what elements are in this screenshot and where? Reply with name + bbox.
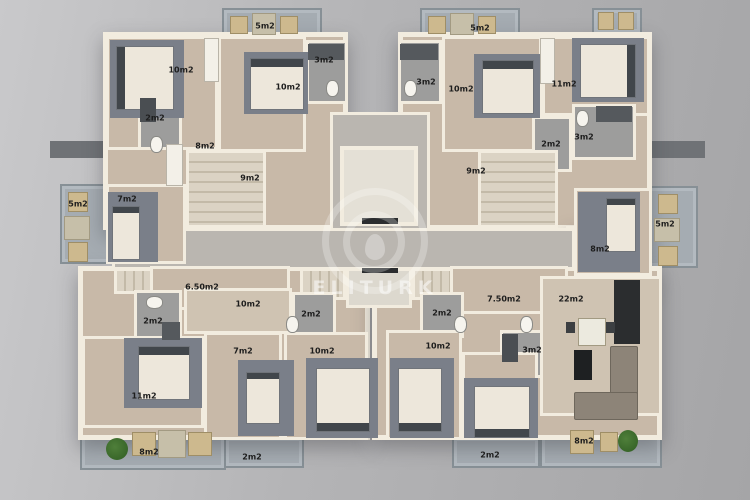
vanity: [140, 98, 156, 122]
bed-headboard: [247, 373, 279, 379]
balcony-chair: [658, 194, 678, 214]
balcony-chair: [658, 246, 678, 266]
wardrobe: [540, 38, 555, 84]
bed-headboard: [483, 61, 533, 69]
shower: [400, 44, 438, 60]
shower: [596, 106, 632, 122]
shower: [162, 322, 180, 340]
bed-headboard: [139, 347, 189, 355]
sofa: [574, 392, 638, 420]
toilet: [576, 110, 589, 127]
balcony-chair: [618, 12, 634, 30]
wardrobe: [204, 38, 219, 82]
balcony-chair: [598, 12, 614, 30]
balcony-chair: [428, 16, 446, 34]
stairs-tl: [186, 150, 266, 228]
tv-unit: [574, 350, 592, 380]
exterior-ledge-right: [645, 141, 705, 158]
bed: [482, 60, 534, 114]
bed-headboard: [317, 423, 369, 431]
elevator-shaft: [340, 146, 418, 226]
bed-headboard: [627, 45, 635, 97]
bed-single: [112, 206, 140, 260]
bed: [250, 58, 304, 110]
balcony-table: [450, 13, 474, 35]
balcony-chair: [280, 16, 298, 34]
balcony-table: [654, 218, 680, 242]
bed-headboard: [607, 199, 635, 205]
kitchen-counter: [614, 280, 640, 344]
bed-headboard: [113, 207, 139, 213]
plant: [618, 430, 638, 452]
balcony-chair: [188, 432, 212, 456]
toilet: [454, 316, 467, 333]
balcony-table: [158, 430, 186, 458]
shower: [308, 44, 344, 60]
balcony-chair: [132, 432, 156, 456]
bed: [398, 368, 442, 432]
toilet: [150, 136, 163, 153]
plant: [106, 438, 128, 460]
floor-plan-render: 5m25m210m210m23m23m210m211m22m28m22m23m2…: [0, 0, 750, 500]
toilet: [286, 316, 299, 333]
balcony-chair: [600, 432, 618, 452]
balcony-table: [252, 13, 276, 35]
dining-chair: [606, 322, 615, 333]
elevator-door: [362, 268, 398, 273]
balcony-chair: [478, 16, 496, 34]
bed: [138, 346, 190, 400]
stairs-tr: [478, 150, 558, 228]
elevator-lobby: [346, 268, 412, 308]
wardrobe: [166, 144, 183, 186]
toilet: [146, 296, 163, 309]
elevator-door: [362, 218, 398, 224]
bed-headboard: [475, 429, 529, 437]
bed-headboard: [251, 59, 303, 67]
balcony-chair: [570, 430, 594, 454]
balcony-bottom-center-right: [452, 436, 540, 468]
bed: [316, 368, 370, 432]
balcony-bottom-center-left: [224, 436, 304, 468]
bed-single: [606, 198, 636, 252]
balcony-chair: [68, 242, 88, 262]
balcony-chair: [68, 192, 88, 212]
balcony-chair: [230, 16, 248, 34]
vanity: [502, 334, 518, 362]
toilet: [326, 80, 339, 97]
dining-table: [578, 318, 606, 346]
bed-headboard: [117, 47, 125, 109]
toilet: [404, 80, 417, 97]
bed-single: [246, 372, 280, 424]
bed: [580, 44, 636, 98]
balcony-table: [64, 216, 90, 240]
dining-chair: [566, 322, 575, 333]
bed-headboard: [399, 423, 441, 431]
bed: [474, 386, 530, 438]
hall-bl-10: [184, 288, 292, 334]
sink: [520, 316, 533, 333]
